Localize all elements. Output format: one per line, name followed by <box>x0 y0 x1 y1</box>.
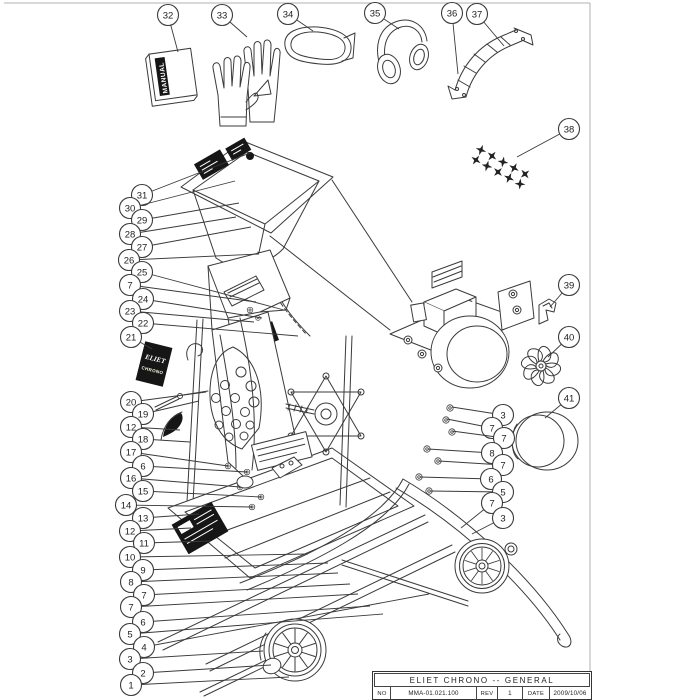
manual-part: MANUAL <box>145 48 198 106</box>
callout-39: 39 <box>550 275 580 308</box>
callout-19: 19 <box>133 401 200 425</box>
leader-line <box>131 594 358 607</box>
callout-number: 7 <box>489 498 494 509</box>
title-block-row: NO MMA-01.021.100 REV 1 DATE 2009/10/06 <box>374 687 590 700</box>
hopper <box>181 136 333 266</box>
callout-number: 29 <box>137 215 148 226</box>
callout-number: 24 <box>138 294 149 305</box>
title-block-no-label: NO <box>374 687 391 700</box>
callout-number: 27 <box>137 242 148 253</box>
callout-number: 26 <box>124 255 135 266</box>
engine <box>390 261 534 388</box>
callout-number: 36 <box>447 8 458 19</box>
callout-number: 19 <box>138 409 149 420</box>
callout-number: 17 <box>126 447 137 458</box>
callout-number: 1 <box>128 680 133 691</box>
callout-number: 6 <box>488 474 493 485</box>
title-block-date-label: DATE <box>523 687 550 700</box>
callout-7: 7 <box>439 455 514 476</box>
callout-32: 32 <box>158 5 179 53</box>
leader-line <box>142 203 239 220</box>
callout-number: 11 <box>139 538 149 549</box>
callout-6: 6 <box>133 606 371 633</box>
wheel-cap-part <box>512 412 578 470</box>
callout-number: 32 <box>163 10 174 21</box>
callout-27: 27 <box>132 227 252 258</box>
gloves-part <box>213 40 280 126</box>
callout-number: 13 <box>138 513 149 524</box>
callout-number: 38 <box>564 124 575 135</box>
brand-decal: ELIET CHRONO <box>136 341 173 387</box>
blade-set-part <box>468 143 532 190</box>
tension-rod-part <box>155 391 208 410</box>
title-block-rev-value: 1 <box>498 687 523 700</box>
callout-number: 8 <box>128 577 133 588</box>
callout-number: 12 <box>125 526 136 537</box>
callout-number: 8 <box>489 448 494 459</box>
lever-part <box>161 412 183 440</box>
callout-number: 37 <box>472 9 483 20</box>
callout-5: 5 <box>120 614 384 645</box>
callout-number: 31 <box>137 190 148 201</box>
callout-number: 2 <box>140 668 145 679</box>
callout-number: 5 <box>500 487 505 498</box>
callout-number: 6 <box>140 461 145 472</box>
callout-number: 7 <box>127 280 132 291</box>
callout-number: 7 <box>500 460 505 471</box>
callout-34: 34 <box>278 4 314 32</box>
callout-number: 39 <box>564 280 575 291</box>
callout-number: 28 <box>125 229 136 240</box>
callout-number: 7 <box>141 590 146 601</box>
callout-36: 36 <box>442 3 463 75</box>
callout-number: 4 <box>141 642 146 653</box>
callout-number: 18 <box>138 434 149 445</box>
earmuffs-part <box>374 20 432 87</box>
leader-line <box>143 665 271 673</box>
callout-number: 7 <box>489 423 494 434</box>
right-wheel <box>455 539 509 593</box>
oval-part <box>237 476 253 488</box>
callout-number: 7 <box>128 602 133 613</box>
callout-number: 7 <box>501 433 506 444</box>
callout-number: 23 <box>125 306 136 317</box>
callout-number: 16 <box>126 473 137 484</box>
title-block-no-value: MMA-01.021.100 <box>391 687 477 700</box>
callout-6: 6 <box>420 469 502 490</box>
title-block-date-value: 2009/10/06 <box>550 687 590 700</box>
leader-line <box>143 606 370 622</box>
callout-number: 9 <box>140 565 145 576</box>
callout-layer: 3233343536373839404131302928272625724232… <box>116 3 580 696</box>
right-wheel-cap <box>505 543 517 555</box>
leader-line <box>142 227 251 247</box>
callout-37: 37 <box>467 4 505 47</box>
exploded-parts-diagram: MANUAL <box>0 0 700 700</box>
leader-line <box>130 614 383 634</box>
goggles-part <box>285 27 355 64</box>
callout-number: 25 <box>137 267 148 278</box>
callout-number: 34 <box>283 9 294 20</box>
fan-part <box>519 344 562 387</box>
discharge-chute-part <box>448 28 533 99</box>
callout-38: 38 <box>517 119 580 158</box>
callout-33: 33 <box>212 5 248 38</box>
callout-40: 40 <box>548 327 580 358</box>
title-block-title: ELIET CHRONO -- GENERAL <box>374 673 590 687</box>
callout-number: 5 <box>127 629 132 640</box>
callout-2: 2 <box>133 663 272 684</box>
callout-number: 3 <box>500 513 505 524</box>
callout-number: 35 <box>370 8 381 19</box>
callout-number: 3 <box>500 410 505 421</box>
callout-number: 14 <box>121 500 132 511</box>
callout-number: 10 <box>125 552 136 563</box>
leader-line <box>144 584 350 595</box>
title-block-rev-label: REV <box>477 687 498 700</box>
callout-number: 15 <box>138 486 149 497</box>
callout-number: 3 <box>127 654 132 665</box>
callout-number: 41 <box>564 393 575 404</box>
callout-41: 41 <box>545 388 580 419</box>
callout-number: 22 <box>138 318 149 329</box>
callout-number: 40 <box>564 332 575 343</box>
callout-35: 35 <box>365 3 400 30</box>
leader-line <box>131 677 289 685</box>
callout-number: 6 <box>140 617 145 628</box>
title-block: ELIET CHRONO -- GENERAL NO MMA-01.021.10… <box>372 671 592 700</box>
callout-number: 33 <box>217 10 228 21</box>
callout-number: 21 <box>126 332 137 343</box>
